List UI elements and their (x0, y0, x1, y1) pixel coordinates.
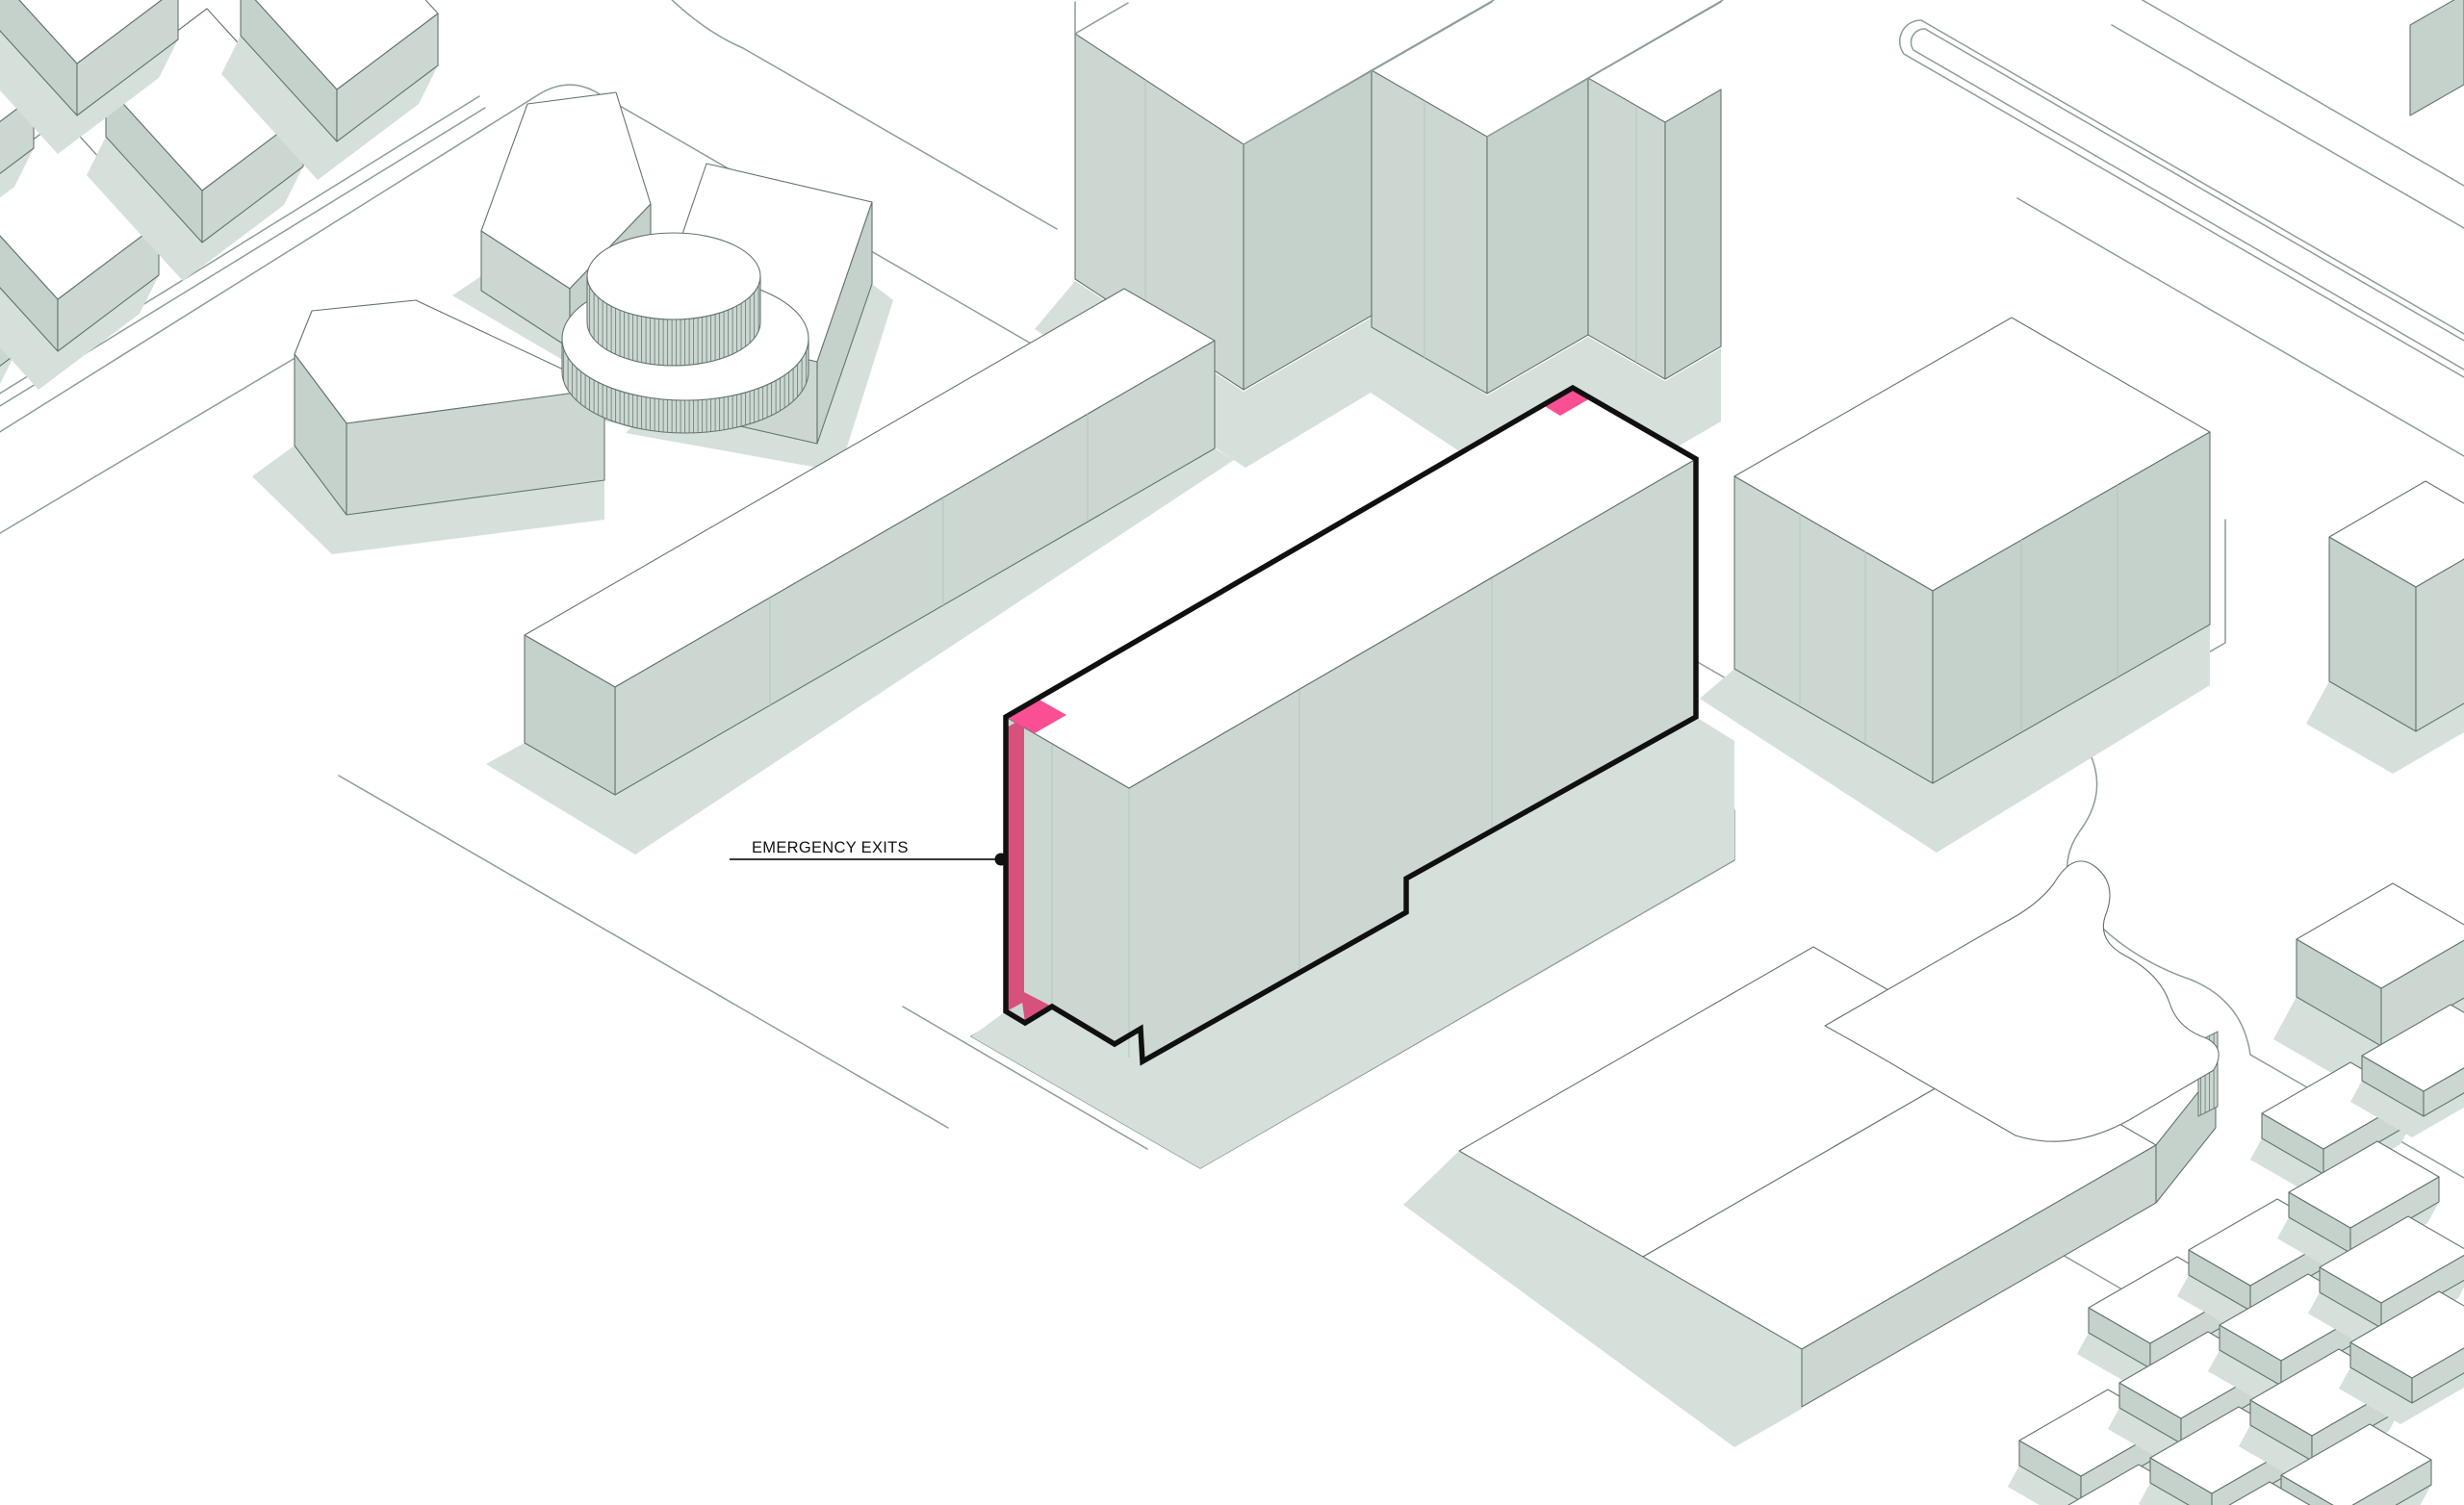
axonometric-site-plan: EMERGENCY EXITS (0, 0, 2464, 1505)
railway-track-loop (1900, 0, 2464, 377)
site-plan-stage: EMERGENCY EXITS (0, 0, 2464, 1505)
emergency-exits-label: EMERGENCY EXITS (752, 839, 909, 856)
corner-slab (2410, 0, 2464, 115)
leader-dot (995, 854, 1008, 866)
east-low-buildings (2273, 481, 2464, 1088)
annotation: EMERGENCY EXITS (730, 839, 1008, 866)
east-office-block (1700, 318, 2210, 853)
wall-face (1588, 78, 1665, 379)
wall-face (1665, 89, 1721, 379)
